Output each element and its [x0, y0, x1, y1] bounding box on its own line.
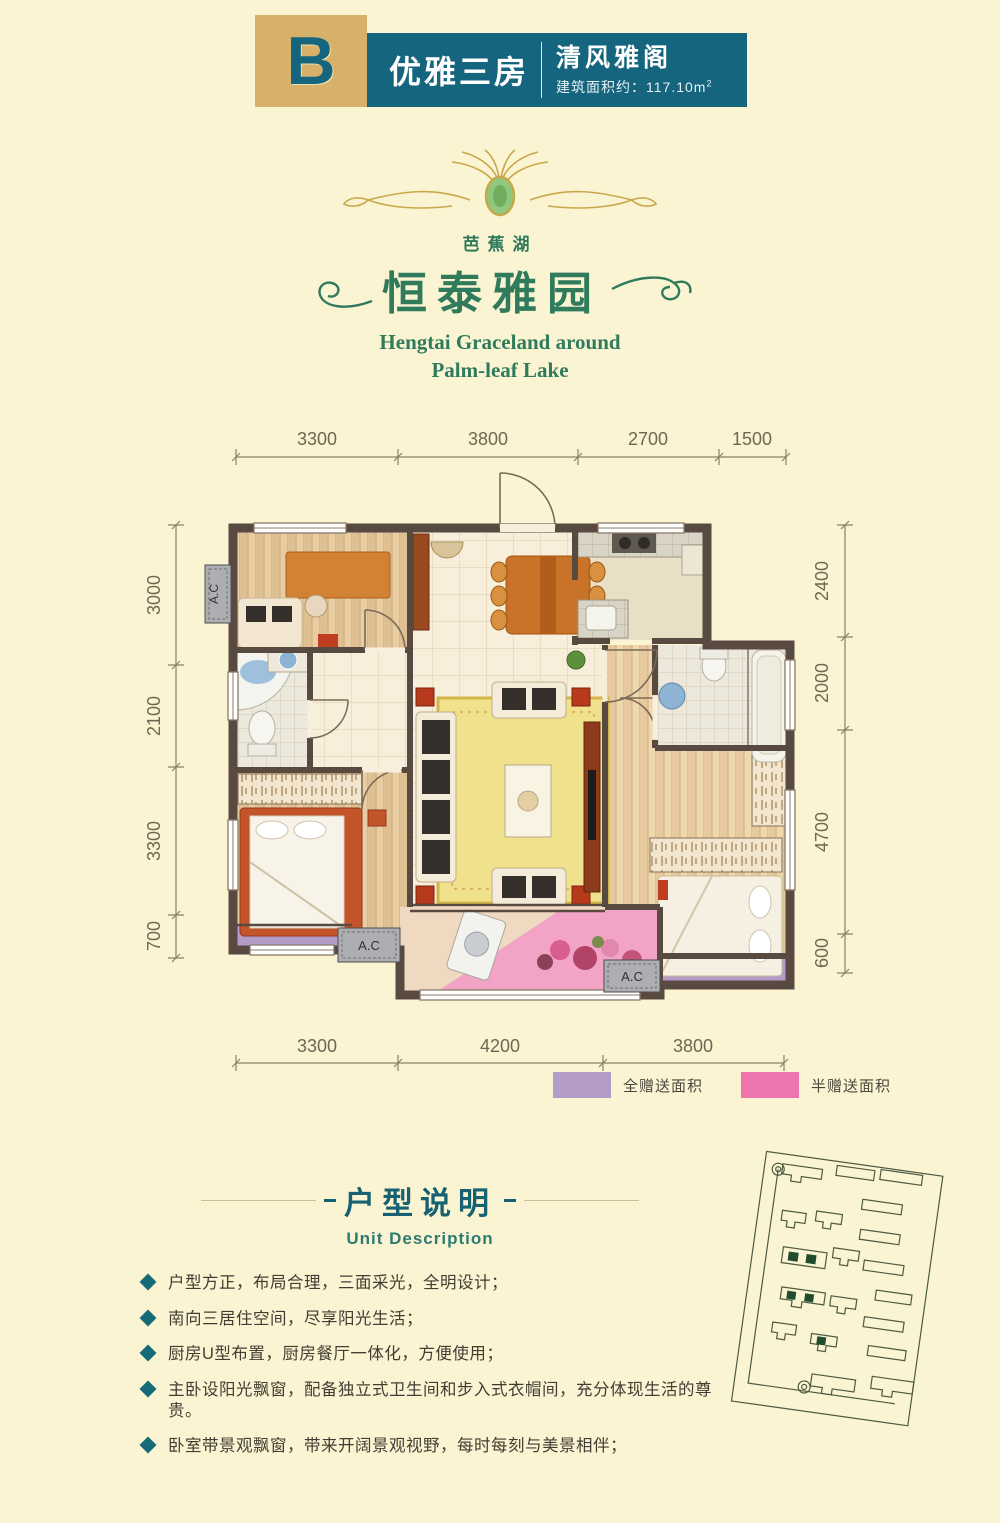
dim-left-3: 3300	[144, 821, 164, 861]
burner	[619, 537, 631, 549]
flourish-left-icon	[306, 267, 376, 313]
dim-left-1: 3000	[144, 575, 164, 615]
cloud-flourish-icon	[608, 267, 694, 313]
title-rule-right	[524, 1200, 639, 1201]
dim-top-4: 1500	[732, 429, 772, 449]
kitchen-sink	[586, 606, 616, 630]
list-item: 主卧设阳光飘窗，配备独立式卫生间和步入式衣帽间，充分体现生活的尊贵。	[142, 1380, 720, 1421]
legend-item-half-gift: 半赠送面积	[741, 1072, 891, 1098]
dim-bottom-3: 3800	[673, 1036, 713, 1056]
study-sofa	[238, 598, 302, 648]
toilet-tank-master	[700, 648, 728, 659]
dim-top-3: 2700	[628, 429, 668, 449]
list-item: 厨房U型布置，厨房餐厅一体化，方便使用；	[142, 1344, 720, 1365]
pillow	[256, 821, 288, 839]
dim-right-2: 2000	[812, 663, 832, 703]
dining-runner	[540, 556, 556, 634]
sofa-top-cushion	[502, 688, 526, 710]
bed-bench	[658, 880, 668, 900]
ac-label-left: A.C	[207, 584, 221, 604]
dresser-master	[752, 754, 786, 826]
description-subtitle: Unit Description	[120, 1229, 720, 1249]
sofa-bottom-cushion	[502, 876, 526, 898]
study-side-table	[318, 634, 338, 648]
legend-label-half: 半赠送面积	[811, 1075, 891, 1096]
diamond-bullet-icon	[140, 1345, 157, 1362]
sofa-top-cushion-2	[532, 688, 556, 710]
description-list: 户型方正，布局合理，三面采光，全明设计； 南向三居住空间，尽享阳光生活； 厨房U…	[142, 1273, 720, 1457]
ac-label-bottom-right: A.C	[621, 969, 643, 984]
dim-right-3: 4700	[812, 812, 832, 852]
ac-label-bottom-left: A.C	[358, 938, 380, 953]
study-cushion	[246, 606, 266, 622]
dim-bottom-1: 3300	[297, 1036, 337, 1056]
legend-swatch-half	[741, 1072, 799, 1098]
unit-name-label: 清风雅阁	[556, 43, 712, 73]
diamond-bullet-icon	[140, 1274, 157, 1291]
list-item: 南向三居住空间，尽享阳光生活；	[142, 1309, 720, 1330]
title-rule-left	[201, 1200, 316, 1201]
diamond-bullet-icon	[140, 1380, 157, 1397]
unit-letter: B	[286, 27, 335, 95]
basin-master	[659, 683, 685, 709]
legend: 全赠送面积 半赠送面积	[553, 1072, 891, 1098]
dim-right-1: 2400	[812, 561, 832, 601]
brand-name-en-2: Palm-leaf Lake	[0, 356, 1000, 384]
pillow-2	[294, 821, 326, 839]
description-title: 户型说明	[344, 1178, 496, 1223]
diamond-bullet-icon	[140, 1437, 157, 1454]
wardrobe-2	[238, 774, 362, 804]
unit-type-label: 优雅三房	[389, 47, 529, 93]
study-cushion-2	[272, 606, 292, 622]
dim-bottom-2: 4200	[480, 1036, 520, 1056]
brand-logo: 芭蕉湖 恒泰雅园 Hengtai Graceland around Palm-l…	[0, 148, 1000, 385]
fridge	[682, 545, 704, 575]
unit-letter-badge: B	[255, 15, 367, 107]
burner-2	[638, 537, 650, 549]
entry-cabinet	[413, 534, 429, 630]
desk	[286, 552, 390, 598]
brand-name-cn: 恒泰雅园	[382, 257, 602, 322]
tv	[588, 770, 596, 840]
unit-description: 户型说明 Unit Description 户型方正，布局合理，三面采光，全明设…	[120, 1178, 720, 1472]
dim-top-2: 3800	[468, 429, 508, 449]
site-plan-map	[700, 1145, 980, 1435]
hallway	[310, 650, 410, 770]
header-divider	[541, 42, 542, 98]
plant-icon	[567, 651, 585, 669]
floor-plan: 3300 3800 2700 1500 3300 4200 3800 3000 …	[130, 420, 860, 1080]
legend-swatch-full	[553, 1072, 611, 1098]
sofa-bottom-cushion-2	[532, 876, 556, 898]
toilet-tank-left	[248, 744, 276, 756]
toilet-left	[249, 711, 275, 745]
crest-icon	[0, 148, 1000, 226]
floor-area-label: 建筑面积约：117.10m2	[556, 77, 712, 97]
title-dash-left	[324, 1199, 336, 1202]
title-dash-right	[504, 1199, 516, 1202]
list-item: 户型方正，布局合理，三面采光，全明设计；	[142, 1273, 720, 1294]
wardrobe-master	[650, 838, 782, 872]
list-item: 卧室带景观飘窗，带来开阔景观视野，每时每刻与美景相伴；	[142, 1436, 720, 1457]
lake-name: 芭蕉湖	[0, 230, 1000, 255]
brand-name-en-1: Hengtai Graceland around	[0, 328, 1000, 356]
legend-label-full: 全赠送面积	[623, 1075, 703, 1096]
nightstand	[368, 810, 386, 826]
dim-right-4: 600	[812, 938, 832, 968]
dim-left-2: 2100	[144, 696, 164, 736]
legend-item-full-gift: 全赠送面积	[553, 1072, 703, 1098]
dim-left-4: 700	[144, 921, 164, 951]
pillow-master	[749, 886, 771, 918]
basin-left	[279, 651, 297, 669]
desk-chair	[305, 595, 327, 617]
coffee-table-decor	[518, 791, 538, 811]
diamond-bullet-icon	[140, 1309, 157, 1326]
header-band: 优雅三房 清风雅阁 建筑面积约：117.10m2	[367, 33, 747, 107]
dim-top-1: 3300	[297, 429, 337, 449]
bathtub-master-inner	[757, 656, 781, 754]
